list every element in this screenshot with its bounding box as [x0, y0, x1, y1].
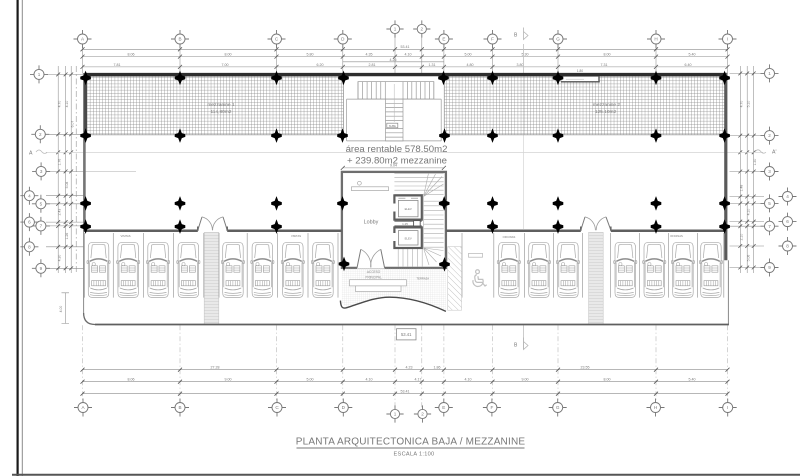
- svg-text:1.25: 1.25: [402, 222, 408, 226]
- svg-text:5.00: 5.00: [465, 53, 472, 57]
- svg-text:8: 8: [28, 244, 31, 249]
- svg-text:1.86: 1.86: [434, 366, 441, 370]
- svg-text:4.26: 4.26: [390, 58, 397, 62]
- svg-text:53.41: 53.41: [401, 332, 412, 337]
- svg-text:1.48: 1.48: [740, 185, 744, 192]
- svg-text:ELEV: ELEV: [405, 237, 412, 241]
- svg-text:8.00: 8.00: [225, 53, 232, 57]
- svg-text:mezzanine 1: mezzanine 1: [207, 102, 235, 108]
- svg-text:1.80: 1.80: [577, 69, 583, 73]
- svg-text:4.70: 4.70: [58, 101, 62, 108]
- svg-text:5.00: 5.00: [307, 378, 314, 382]
- svg-text:2: 2: [421, 27, 424, 32]
- svg-text:2: 2: [421, 412, 424, 417]
- svg-text:6.07: 6.07: [71, 121, 75, 128]
- svg-text:5.10: 5.10: [747, 101, 751, 108]
- svg-text:4.10: 4.10: [465, 378, 472, 382]
- svg-text:1.76: 1.76: [58, 159, 62, 166]
- svg-text:114,80m2: 114,80m2: [211, 109, 232, 115]
- svg-text:125.10m2: 125.10m2: [595, 109, 617, 115]
- svg-text:7: 7: [40, 224, 43, 229]
- svg-text:PLANTA ARQUITECTONICA BAJA / M: PLANTA ARQUITECTONICA BAJA / MEZZANINE: [296, 437, 526, 448]
- svg-text:ESCALA 1:100: ESCALA 1:100: [394, 452, 435, 458]
- svg-text:E: E: [442, 37, 445, 42]
- svg-text:4.30: 4.30: [58, 255, 62, 262]
- svg-text:G: G: [556, 37, 560, 42]
- svg-text:7.81: 7.81: [114, 63, 121, 67]
- svg-text:F: F: [490, 405, 493, 410]
- svg-text:7: 7: [768, 224, 771, 229]
- svg-text:VISITAS: VISITAS: [120, 234, 130, 238]
- svg-text:53.41: 53.41: [401, 390, 410, 394]
- svg-text:4.10: 4.10: [65, 101, 69, 108]
- svg-text:6.40: 6.40: [685, 63, 692, 67]
- svg-text:3: 3: [768, 169, 771, 174]
- svg-text:OFICINAS: OFICINAS: [503, 235, 516, 239]
- svg-text:8: 8: [786, 244, 789, 249]
- svg-text:mezzanine 2: mezzanine 2: [593, 102, 621, 108]
- svg-text:5.80: 5.80: [307, 53, 314, 57]
- svg-text:3: 3: [40, 169, 43, 174]
- svg-text:2.10: 2.10: [740, 234, 744, 241]
- svg-text:9.00: 9.00: [225, 378, 232, 382]
- svg-text:53.41: 53.41: [401, 45, 410, 49]
- svg-text:5.40: 5.40: [689, 378, 696, 382]
- svg-text:1: 1: [38, 72, 41, 77]
- svg-text:2: 2: [768, 133, 771, 138]
- svg-text:7.31: 7.31: [601, 63, 608, 67]
- svg-text:1: 1: [394, 412, 397, 417]
- svg-text:4.10: 4.10: [747, 209, 751, 216]
- svg-text:8.06: 8.06: [128, 378, 135, 382]
- svg-text:B: B: [178, 37, 181, 42]
- svg-text:4.80: 4.80: [467, 63, 474, 67]
- svg-text:SUBE: SUBE: [389, 124, 396, 128]
- svg-text:4.00: 4.00: [59, 306, 63, 313]
- svg-text:2: 2: [39, 132, 42, 137]
- svg-text:8.06: 8.06: [128, 53, 135, 57]
- svg-text:Lobby: Lobby: [364, 219, 379, 225]
- svg-text:I: I: [727, 37, 728, 42]
- svg-text:2.81: 2.81: [369, 63, 376, 67]
- svg-text:OFICINAS: OFICINAS: [670, 234, 683, 238]
- svg-text:6.20: 6.20: [317, 63, 324, 67]
- svg-text:B: B: [178, 405, 181, 410]
- svg-text:I: I: [727, 405, 728, 410]
- svg-text:1: 1: [394, 27, 397, 32]
- svg-text:6: 6: [28, 220, 31, 225]
- svg-text:5.40: 5.40: [689, 53, 696, 57]
- svg-text:H: H: [654, 405, 657, 410]
- svg-text:9.00: 9.00: [522, 378, 529, 382]
- svg-text:4.10: 4.10: [405, 53, 412, 57]
- svg-text:6: 6: [786, 219, 789, 224]
- svg-text:1.26: 1.26: [65, 233, 69, 240]
- svg-text:E: E: [442, 405, 445, 410]
- svg-text:H: H: [654, 37, 657, 42]
- svg-text:4.35: 4.35: [366, 53, 373, 57]
- svg-text:TERRAZA: TERRAZA: [417, 277, 430, 281]
- svg-text:+ 239.80m2 mezzanine: + 239.80m2 mezzanine: [347, 156, 447, 167]
- svg-text:5.30: 5.30: [522, 53, 529, 57]
- svg-text:9: 9: [768, 265, 771, 270]
- svg-text:4.70: 4.70: [740, 101, 744, 108]
- svg-text:5: 5: [40, 201, 43, 206]
- svg-text:G: G: [556, 405, 560, 410]
- svg-text:1.31: 1.31: [429, 63, 436, 67]
- svg-text:F: F: [491, 37, 494, 42]
- svg-text:8.00: 8.00: [604, 53, 611, 57]
- svg-text:4.10: 4.10: [366, 378, 373, 382]
- svg-text:1: 1: [768, 71, 771, 76]
- svg-text:2.43: 2.43: [58, 209, 62, 216]
- svg-text:4.17: 4.17: [415, 378, 422, 382]
- svg-text:3.80: 3.80: [517, 63, 524, 67]
- svg-text:A: A: [29, 150, 33, 156]
- svg-text:9: 9: [40, 266, 43, 271]
- svg-text:27.28: 27.28: [211, 366, 220, 370]
- svg-text:4: 4: [28, 193, 31, 198]
- svg-text:7.00: 7.00: [222, 63, 229, 67]
- svg-text:A': A': [772, 149, 776, 155]
- svg-text:23.55: 23.55: [581, 366, 590, 370]
- svg-text:4.23: 4.23: [406, 366, 413, 370]
- svg-text:ELEV: ELEV: [405, 207, 412, 211]
- svg-text:5: 5: [768, 201, 771, 206]
- svg-text:área rentable 578.50m2: área rentable 578.50m2: [346, 144, 448, 155]
- svg-text:1.30: 1.30: [753, 159, 757, 166]
- svg-text:4: 4: [786, 194, 789, 199]
- svg-text:5.06: 5.06: [747, 255, 751, 262]
- svg-text:VISITAS: VISITAS: [291, 234, 301, 238]
- svg-text:8.00: 8.00: [604, 378, 611, 382]
- svg-text:5.08: 5.08: [65, 182, 69, 189]
